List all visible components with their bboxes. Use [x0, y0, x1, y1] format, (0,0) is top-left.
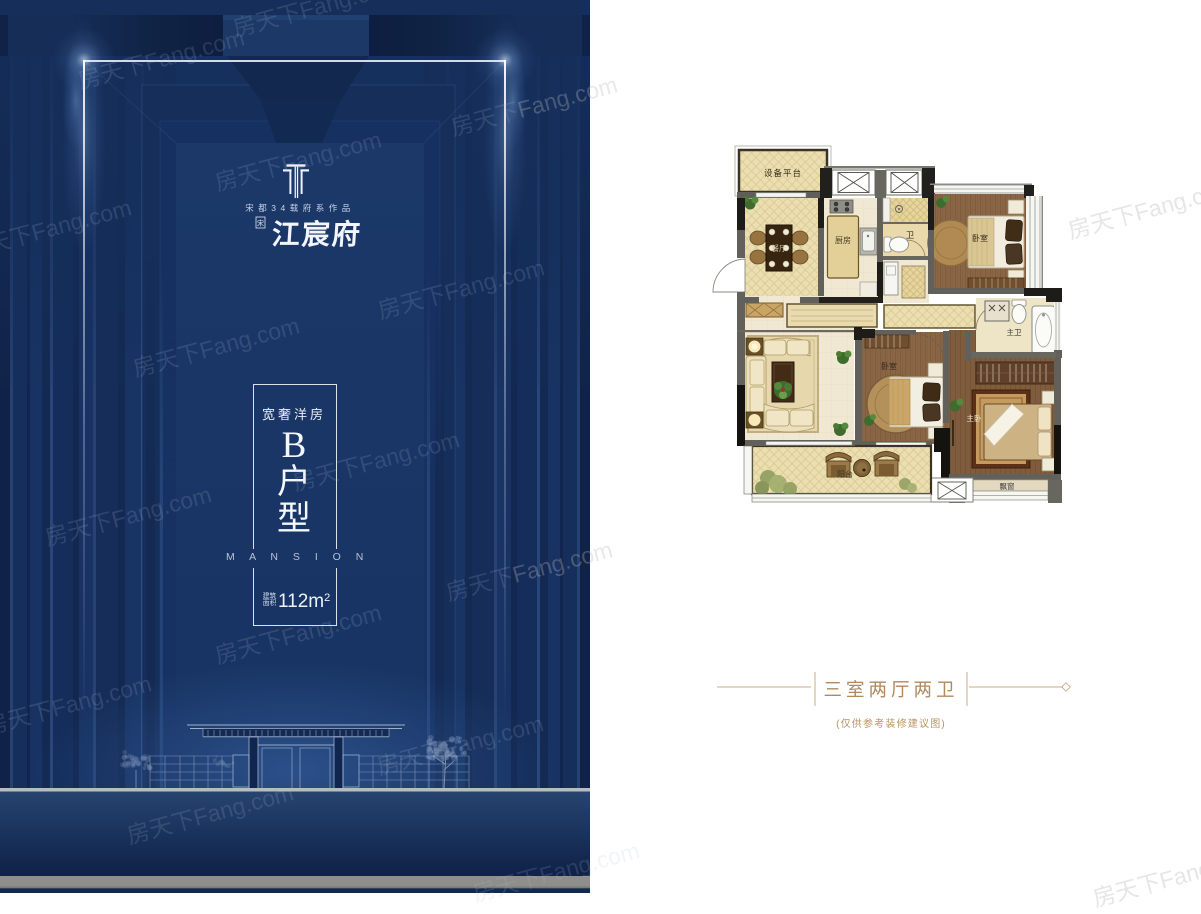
svg-text:卫: 卫	[906, 230, 915, 240]
svg-text:飘窗: 飘窗	[1000, 481, 1015, 491]
svg-text:设备平台: 设备平台	[764, 168, 802, 178]
svg-text:三室两厅两卫: 三室两厅两卫	[823, 679, 958, 700]
svg-text:厨房: 厨房	[835, 235, 851, 245]
svg-text:卧室: 卧室	[972, 233, 988, 243]
svg-text:餐厅: 餐厅	[772, 244, 787, 253]
svg-text:主卧: 主卧	[967, 413, 982, 423]
svg-text:阳台: 阳台	[837, 469, 853, 479]
svg-text:主卫: 主卫	[1007, 327, 1022, 337]
svg-text:卧室: 卧室	[881, 361, 897, 371]
svg-text:(仅供参考装修建议图): (仅供参考装修建议图)	[836, 717, 946, 730]
